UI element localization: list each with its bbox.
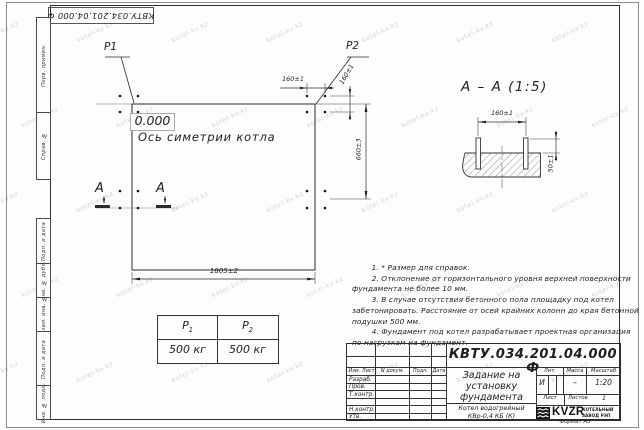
doc-title-line1: Задание на <box>447 371 536 381</box>
note-line: подушки 500 мм. <box>352 317 421 326</box>
row-prov: Пров. <box>349 384 375 390</box>
anchor-bolts <box>119 95 327 210</box>
header-n-dokum: N докум. <box>376 369 409 374</box>
note-line: 4. Фундамент под котел разрабатывает про… <box>352 327 631 336</box>
sheets-label: Листов <box>568 396 594 402</box>
section-letter-right: А <box>156 182 170 196</box>
lit-value: И <box>536 379 548 387</box>
title-block: КВТУ.034.201.04.000 Ф Задание на установ… <box>346 343 621 421</box>
row-utv: Утв. <box>349 414 375 420</box>
kvzr-logo-sub1: КОТЕЛЬНЫЙ <box>582 408 614 413</box>
header-izm-list: Изм. Лист <box>348 369 375 374</box>
lit-header: Лит. <box>537 369 563 375</box>
row-razrab: Разраб. <box>349 377 375 383</box>
plan-view <box>95 57 371 284</box>
load-point-1-label: P1 <box>104 42 130 53</box>
header-podp: Подп. <box>410 369 431 374</box>
sheets-value: 1 <box>597 396 611 402</box>
kvzr-logo-icon <box>536 407 550 419</box>
section-title: А – А (1:5) <box>461 80 581 94</box>
dim-160-top: 160±1 <box>278 76 308 83</box>
note-line: 1. * Размер для справок. <box>352 263 470 272</box>
note-line: 3. В случае отсутствия бетонного пола пл… <box>352 295 614 304</box>
load-table: Р1 Р2 500 кг 500 кг <box>157 315 279 364</box>
row-tkontr: Т.контр. <box>349 392 375 398</box>
row-nkontr: Н.контр. <box>349 407 375 413</box>
note-line: забетонировать. Расстояние от осей крайн… <box>352 306 639 315</box>
load-table-header-p2: Р2 <box>218 320 277 334</box>
section-dim-160: 160±1 <box>485 110 519 117</box>
note-line: фундамента не более 10 мм. <box>352 284 468 293</box>
drawing-sheet: kotel-kv.kzkotel-kv.kzkotel-kv.kzkotel-k… <box>0 0 644 430</box>
product-line1: Котел водогрейный <box>447 406 536 413</box>
scale-value: 1:20 <box>587 379 620 387</box>
elevation-mark: 0.000 <box>130 113 175 131</box>
note-line: 2. Отклонение от горизонтального уровня … <box>352 274 631 283</box>
sheet-label: Лист <box>537 396 563 402</box>
load-table-header-p1: Р1 <box>158 320 217 334</box>
boiler-axis-label: Ось симетрии котла <box>138 131 318 143</box>
header-data: Дата <box>432 369 446 374</box>
doc-title-line2: установку <box>447 382 536 392</box>
load-point-2-label: P2 <box>346 41 372 52</box>
doc-title-line3: фундамента <box>447 393 536 403</box>
product-line2: КВр-0,4 КБ (К) <box>447 414 536 421</box>
scale-header: Масштаб <box>587 369 620 375</box>
dim-660: 660±3 <box>356 129 363 169</box>
load-table-value-p2: 500 кг <box>218 344 277 356</box>
section-dim-50: 50±1 <box>548 148 555 178</box>
mass-value: – <box>564 379 586 387</box>
section-letter-left: А <box>95 182 109 196</box>
kvzr-logo-text: KVZR <box>552 406 585 418</box>
format-label: Формат А3 <box>545 420 605 426</box>
kvzr-logo-sub2: ЗАВОД РЭП <box>582 414 611 419</box>
dim-1805: 1805±2 <box>194 268 254 275</box>
section-view <box>463 117 560 190</box>
load-table-value-p1: 500 кг <box>158 344 217 356</box>
mass-header: Масса <box>564 369 586 375</box>
